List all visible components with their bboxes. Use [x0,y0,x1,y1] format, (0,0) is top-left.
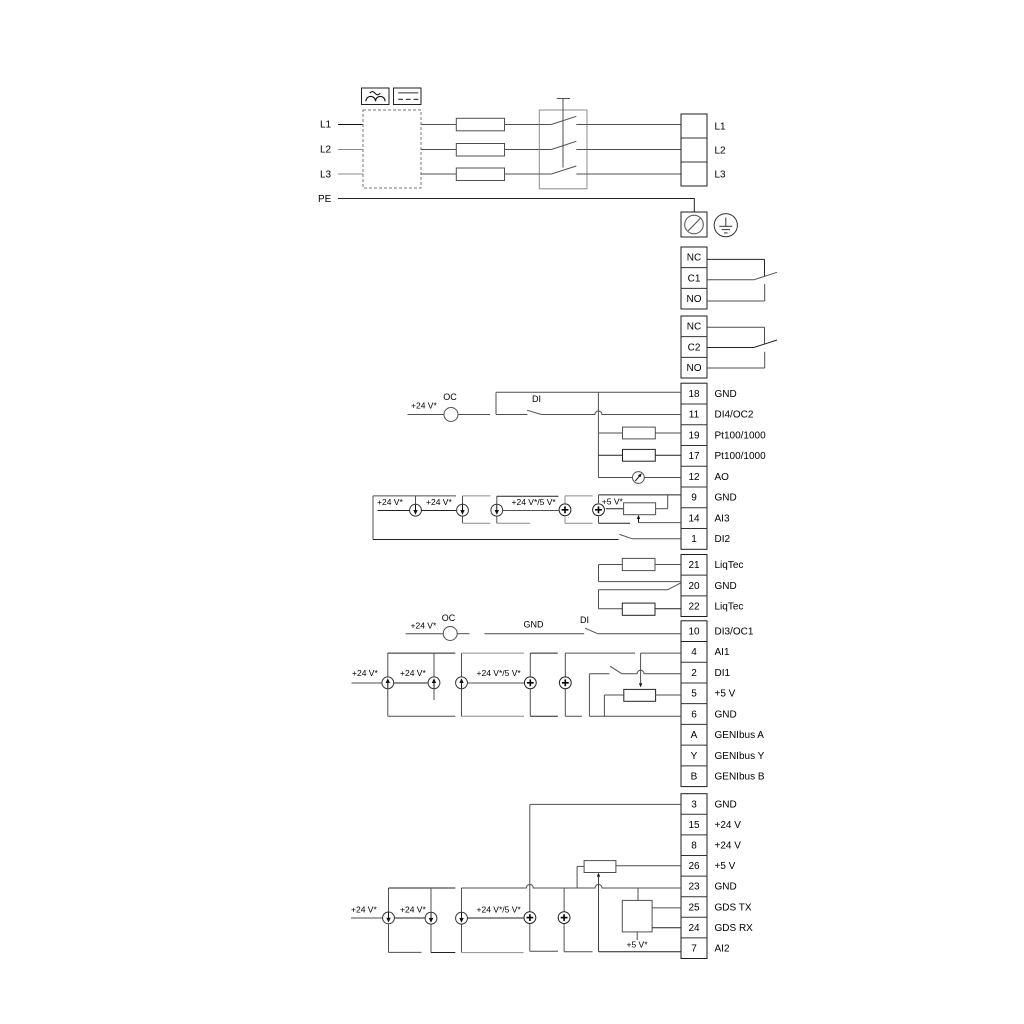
svg-text:DI: DI [532,394,541,404]
svg-text:NC: NC [687,253,701,264]
svg-text:15: 15 [688,820,700,831]
svg-text:22: 22 [688,601,700,612]
svg-text:GND: GND [715,581,737,592]
svg-text:23: 23 [688,882,700,893]
svg-text:OC: OC [443,392,457,402]
svg-text:+5 V*: +5 V* [602,497,624,507]
svg-text:24: 24 [688,923,700,934]
svg-text:LiqTec: LiqTec [715,601,744,612]
svg-text:14: 14 [688,513,700,524]
svg-text:+24 V*/5 V*: +24 V*/5 V* [512,497,557,507]
svg-text:26: 26 [688,861,700,872]
svg-text:NO: NO [687,363,702,374]
svg-text:GDS TX: GDS TX [715,902,752,913]
svg-text:GDS RX: GDS RX [715,923,754,934]
svg-text:5: 5 [691,689,697,700]
svg-text:21: 21 [688,560,700,571]
svg-text:DI3/OC1: DI3/OC1 [715,626,754,637]
svg-text:GND: GND [715,389,737,400]
svg-text:GENIbus A: GENIbus A [715,730,765,741]
svg-text:+24 V*: +24 V* [377,497,403,507]
svg-text:L1: L1 [715,121,727,132]
svg-text:GND: GND [524,620,545,630]
svg-text:3: 3 [691,799,697,810]
svg-text:GENIbus Y: GENIbus Y [715,751,765,762]
svg-text:1: 1 [691,534,697,545]
svg-text:+24 V*: +24 V* [400,668,426,678]
svg-text:DI4/OC2: DI4/OC2 [715,410,754,421]
svg-text:+24 V*: +24 V* [352,668,378,678]
svg-text:+5 V: +5 V [715,689,736,700]
svg-text:AI2: AI2 [715,944,730,955]
svg-text:L2: L2 [320,145,332,156]
svg-text:+5 V: +5 V [715,861,736,872]
svg-text:7: 7 [691,944,697,955]
svg-text:+24 V*: +24 V* [426,497,452,507]
svg-text:L1: L1 [320,120,332,131]
svg-text:11: 11 [689,410,700,421]
svg-text:GND: GND [715,799,737,810]
svg-text:AI1: AI1 [715,647,730,658]
svg-text:19: 19 [688,430,700,441]
svg-text:9: 9 [691,493,697,504]
svg-text:+24 V*: +24 V* [411,621,437,631]
svg-text:AO: AO [715,472,730,483]
svg-text:+24 V*/5 V*: +24 V*/5 V* [477,668,522,678]
svg-text:L3: L3 [715,169,727,180]
svg-text:+5 V*: +5 V* [626,940,648,950]
svg-text:DI1: DI1 [715,668,731,679]
svg-text:+24 V*/5 V*: +24 V*/5 V* [477,905,522,915]
svg-text:LiqTec: LiqTec [715,560,744,571]
svg-text:A: A [691,730,698,741]
svg-text:GND: GND [715,493,737,504]
svg-text:4: 4 [691,647,697,658]
svg-text:C2: C2 [688,342,701,353]
svg-text:DI: DI [580,615,589,625]
svg-text:PE: PE [318,194,332,205]
svg-text:Pt100/1000: Pt100/1000 [715,430,767,441]
svg-text:NC: NC [687,322,701,333]
svg-text:Y: Y [691,751,698,762]
svg-text:+24 V*: +24 V* [411,401,437,411]
svg-text:8: 8 [691,841,697,852]
svg-text:+24 V*: +24 V* [351,905,377,915]
svg-text:18: 18 [688,389,700,400]
svg-text:17: 17 [688,451,700,462]
svg-text:L2: L2 [715,145,727,156]
svg-text:12: 12 [688,472,700,483]
svg-text:DI2: DI2 [715,534,731,545]
svg-text:OC: OC [442,613,456,623]
svg-text:B: B [691,772,698,783]
svg-text:20: 20 [688,581,700,592]
svg-text:GND: GND [715,709,737,720]
svg-text:Pt100/1000: Pt100/1000 [715,451,767,462]
svg-text:25: 25 [688,902,700,913]
svg-text:GND: GND [715,882,737,893]
svg-text:L3: L3 [320,170,332,181]
svg-text:+24 V: +24 V [715,820,742,831]
svg-text:6: 6 [691,709,697,720]
svg-text:+24 V: +24 V [715,841,742,852]
svg-text:2: 2 [691,668,697,679]
svg-text:10: 10 [688,626,700,637]
svg-text:+24 V*: +24 V* [400,905,426,915]
svg-text:GENIbus B: GENIbus B [715,772,765,783]
svg-text:NO: NO [687,294,702,305]
svg-text:AI3: AI3 [715,513,730,524]
svg-text:C1: C1 [688,273,701,284]
